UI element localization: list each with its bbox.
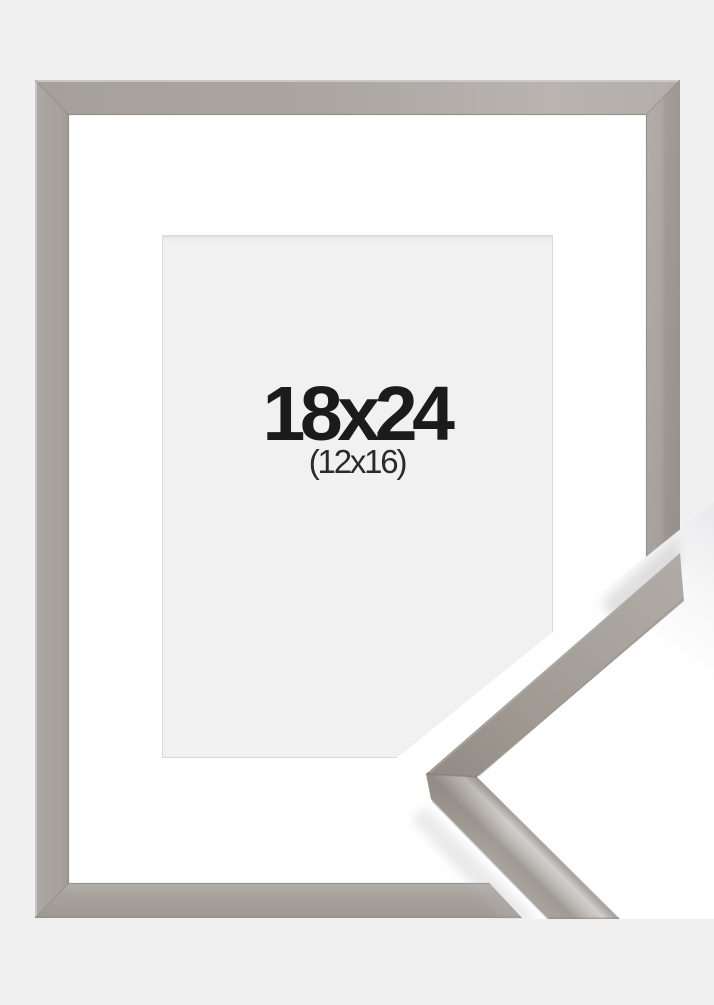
svg-text:(12x16): (12x16): [309, 443, 406, 480]
